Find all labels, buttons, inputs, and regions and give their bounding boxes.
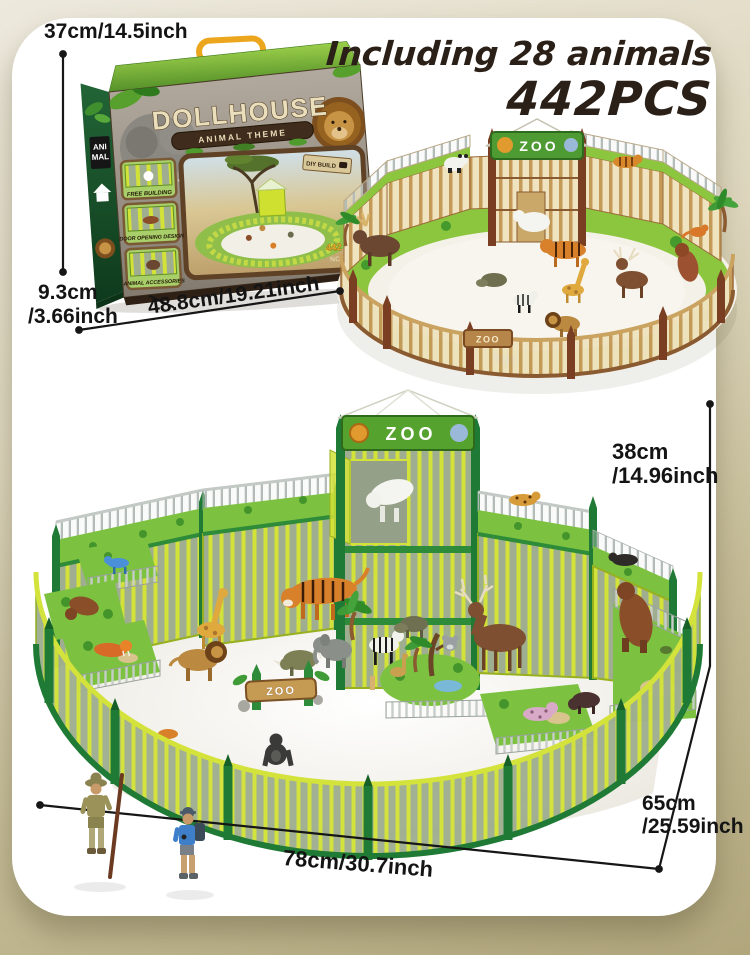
dimension-label-box-depth-inch: /3.66inch (28, 305, 118, 328)
camera (182, 835, 187, 840)
set-height-cm: 38cm (612, 440, 718, 464)
safari-guide-figure (80, 773, 122, 878)
dimension-label-set-depth: 65cm /25.59inch (642, 792, 744, 838)
dimension-label-box-height: 37cm/14.5inch (44, 20, 188, 43)
dimension-line-set-depth (659, 666, 710, 869)
explorer-figures (60, 765, 250, 905)
dimension-label-set-height: 38cm /14.96inch (612, 440, 718, 488)
dimension-line-box-height (60, 51, 66, 275)
headline: Including 28 animals (291, 34, 714, 73)
page-background: ANI MAL (0, 0, 750, 955)
set-height-inch: /14.96inch (612, 464, 718, 488)
set-depth-cm: 65cm (642, 792, 744, 815)
dimension-label-box-depth-cm: 9.3cm (38, 281, 98, 304)
piece-count: 442PCS (290, 72, 714, 127)
walking-staff (110, 775, 122, 877)
backpack (194, 823, 205, 841)
backpacker-figure (173, 807, 205, 879)
set-depth-inch: /25.59inch (642, 815, 744, 838)
